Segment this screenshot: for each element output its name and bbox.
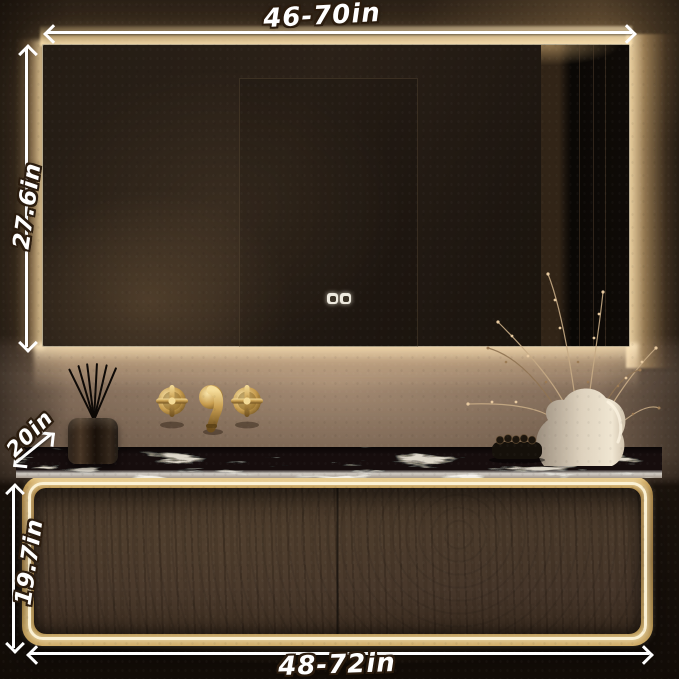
product-photo-vanity-mirror: 46-70in 27.6in 20in 19.7in 48-72in xyxy=(0,0,679,679)
vase-body xyxy=(536,388,625,466)
led-floating-vanity-cabinet xyxy=(22,476,653,646)
black-brush-set xyxy=(486,430,548,464)
cabinet-width-label: 48-72in xyxy=(278,650,396,679)
brush-set-graphic xyxy=(486,430,548,464)
light-touch-button-icon xyxy=(340,293,351,304)
defog-glyph xyxy=(330,296,336,302)
counter-lit-edge xyxy=(16,470,662,478)
mirror-width-label: 46-70in xyxy=(263,0,382,32)
wall-mount-gold-faucet xyxy=(140,380,270,442)
reed-diffuser xyxy=(66,368,122,464)
diffuser-jar xyxy=(68,418,118,464)
cabinet-wood-drawers xyxy=(34,488,641,634)
light-glyph xyxy=(343,296,349,302)
dim-line-mirror-width xyxy=(46,31,632,34)
faucet-graphic xyxy=(140,380,270,442)
defog-touch-button-icon xyxy=(327,293,338,304)
door-reflection xyxy=(239,78,418,347)
